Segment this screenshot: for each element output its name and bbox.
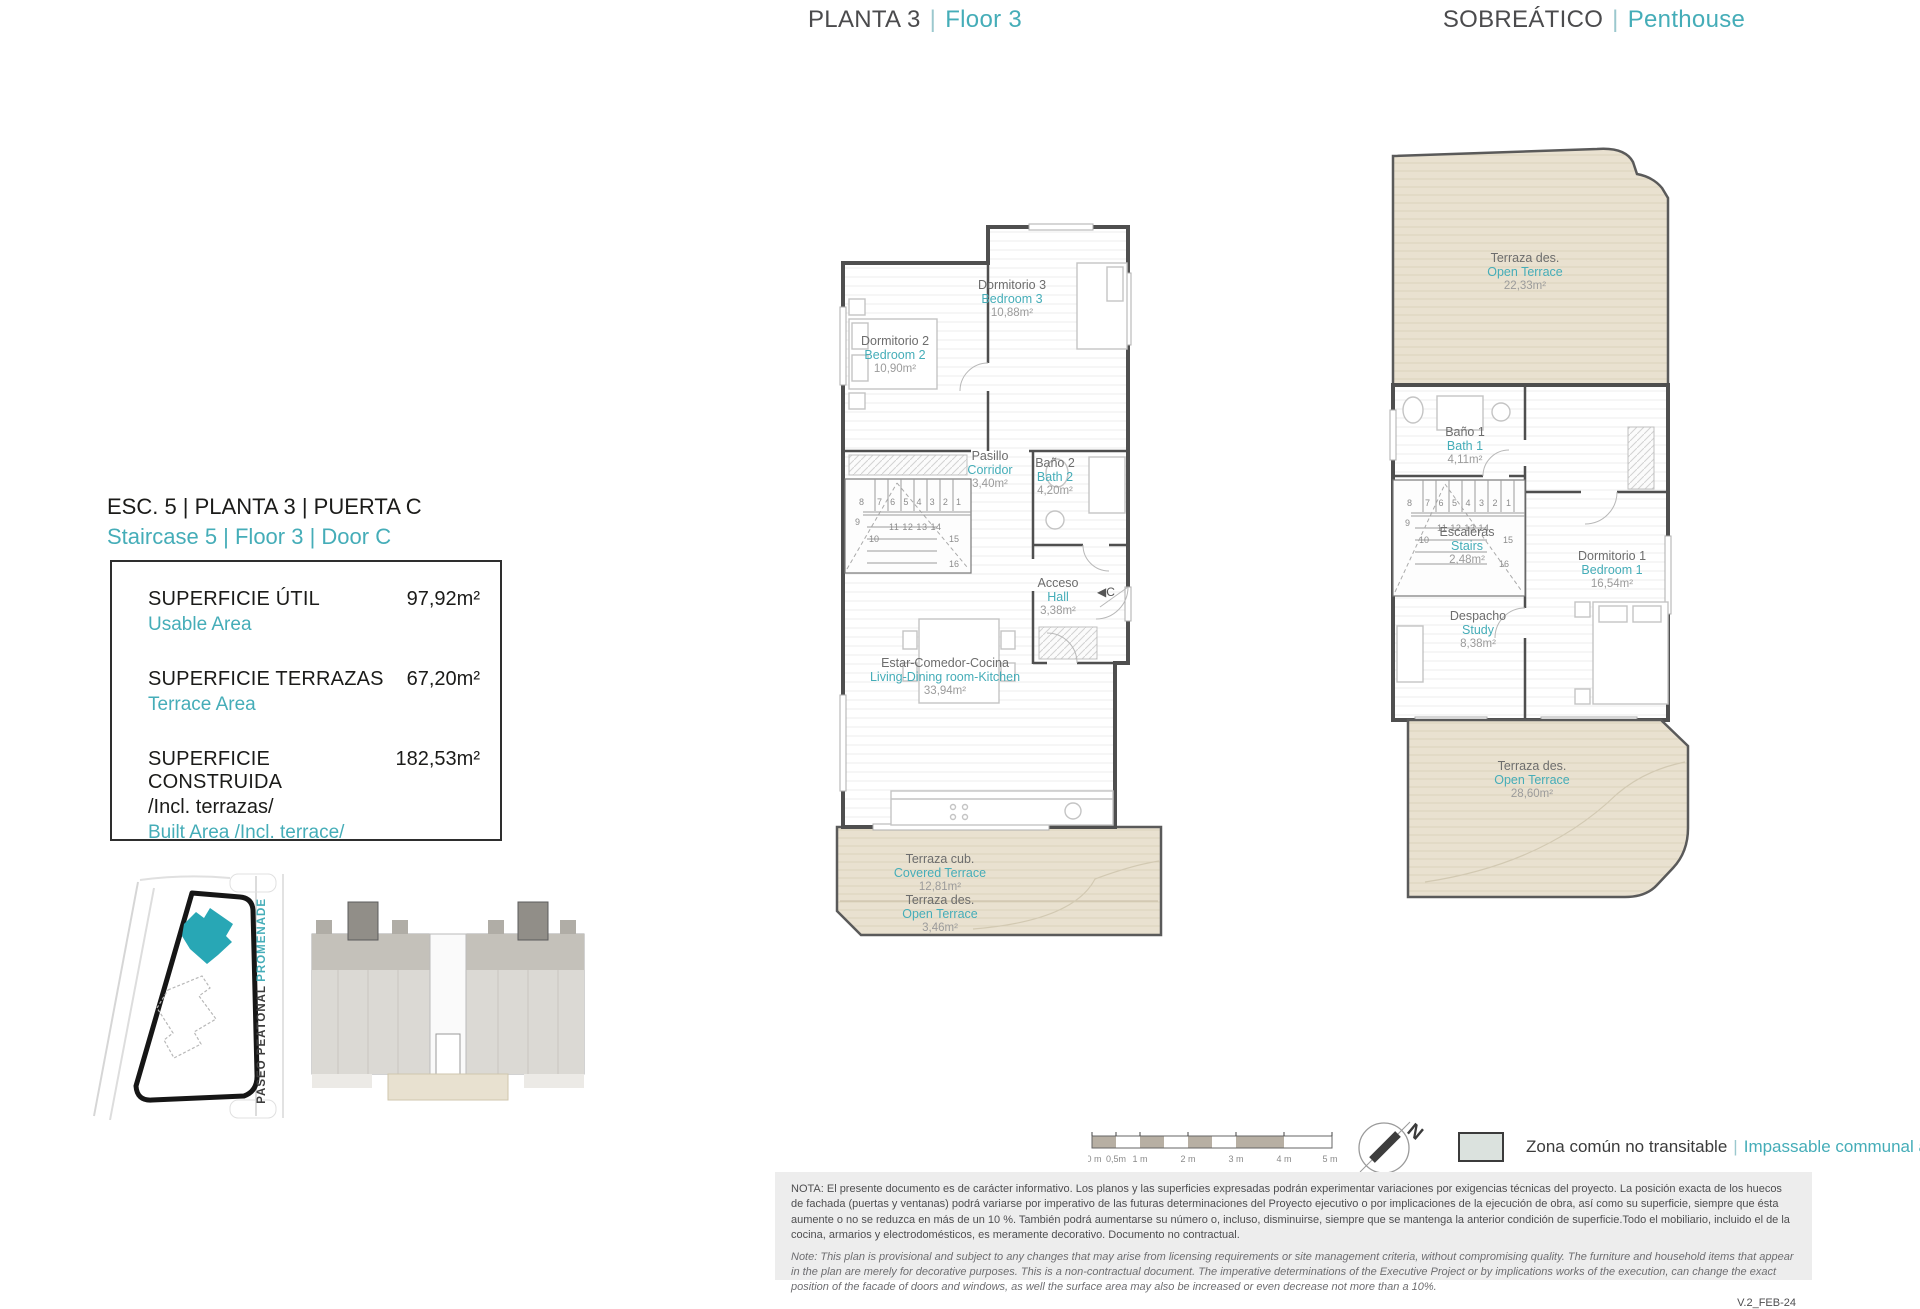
terrace-deck [837, 827, 1161, 935]
street-corner [230, 1100, 276, 1118]
room-name-es: Baño 1 [1445, 425, 1485, 439]
legend: Zona común no transitable|Impassable com… [1458, 1132, 1920, 1162]
bottom-terrace-deck [1408, 720, 1688, 897]
floor3-page-title: PLANTA 3|Floor 3 [750, 6, 1080, 34]
room-area: 3,46m² [902, 922, 978, 935]
scale-label: 3 m [1228, 1154, 1243, 1164]
room-area: 3,40m² [967, 478, 1012, 491]
room-name-en: Bedroom 3 [978, 292, 1046, 306]
site-plan-drawing [80, 872, 285, 1120]
floorplan-floor3: 8 7 6 5 4 3 2 1 9 10 11 12 13 14 15 16 [833, 215, 1165, 953]
room-name-es: Baño 2 [1035, 456, 1075, 470]
legend-label-en: Impassable communal area [1744, 1137, 1920, 1156]
unit-title-es: ESC. 5 | PLANTA 3 | PUERTA C [107, 492, 422, 522]
entry-door-marker: ◀C [1097, 585, 1115, 599]
floor3-title-es: PLANTA 3 [808, 6, 921, 33]
room-name-en: Open Terrace [902, 907, 978, 921]
penthouse-page-title: SOBREÁTICO|Penthouse [1404, 6, 1784, 34]
room-label-open-terrace: Terraza des. Open Terrace 3,46m² [902, 893, 978, 935]
unit-title: ESC. 5 | PLANTA 3 | PUERTA C Staircase 5… [107, 492, 422, 551]
corridor-closet [849, 455, 967, 475]
penthouse-title-en: Penthouse [1628, 6, 1745, 33]
roof-unit [392, 920, 408, 934]
street-line [140, 876, 230, 880]
floorplan-sheet: { "colors": { "accent": "#45ADB8", "site… [0, 0, 1920, 1280]
room-label-study: Despacho Study 8,38m² [1450, 609, 1506, 651]
disclaimer-band: NOTA: El presente documento es de caráct… [775, 1172, 1812, 1280]
scale-label: 5 m [1322, 1154, 1337, 1164]
room-name-en: Covered Terrace [894, 866, 986, 880]
floorplan-penthouse: 8 7 6 5 4 3 2 1 9 10 11 12 13 14 15 16 [1385, 140, 1697, 930]
room-name-es: Terraza des. [1494, 759, 1570, 773]
room-label-corridor: Pasillo Corridor 3,40m² [967, 449, 1012, 491]
roof-unit [316, 920, 332, 934]
room-label-bedroom3: Dormitorio 3 Bedroom 3 10,88m² [978, 278, 1046, 320]
floorplan-floor3-drawing: 8 7 6 5 4 3 2 1 9 10 11 12 13 14 15 16 [833, 215, 1165, 953]
stair-number: 10 [1419, 535, 1429, 545]
room-label-open-terrace-top: Terraza des. Open Terrace 22,33m² [1487, 251, 1563, 293]
room-area: 12,81m² [894, 881, 986, 894]
scale-bar-drawing: 0 m 0,5m 1 m 2 m 3 m 4 m 5 m [1088, 1130, 1340, 1174]
side-apron [312, 1074, 372, 1088]
stair-number: 9 [1405, 518, 1410, 528]
room-name-es: Dormitorio 2 [861, 334, 929, 348]
scale-segments [1092, 1136, 1332, 1148]
room-name-en: Bath 2 [1035, 470, 1075, 484]
built-area-sublabel: Built Area /Incl. terrace/ [148, 822, 480, 844]
room-area: 8,38m² [1450, 638, 1506, 651]
room-area: 22,33m² [1487, 280, 1563, 293]
floor3-title-en: Floor 3 [945, 6, 1022, 33]
room-name-es: Terraza des. [1487, 251, 1563, 265]
room-name-en: Open Terrace [1487, 265, 1563, 279]
compass-needle [1372, 1134, 1398, 1160]
room-area: 3,38m² [1038, 605, 1079, 618]
scale-label: 1 m [1132, 1154, 1147, 1164]
scale-label: 0 m [1088, 1154, 1102, 1164]
room-area: 10,90m² [861, 363, 929, 376]
room-name-en: Bedroom 1 [1578, 563, 1646, 577]
room-label-living: Estar-Comedor-Cocina Living-Dining room-… [870, 656, 1020, 698]
scale-label: 2 m [1180, 1154, 1195, 1164]
built-area-label: SUPERFICIE CONSTRUIDA [148, 748, 398, 794]
scale-labels: 0 m 0,5m 1 m 2 m 3 m 4 m 5 m [1088, 1154, 1338, 1164]
room-area: 16,54m² [1578, 578, 1646, 591]
room-label-stairs: Escaleras Stairs 2,48m² [1440, 525, 1495, 567]
unit-title-en: Staircase 5 | Floor 3 | Door C [107, 522, 422, 552]
stair-core [518, 902, 548, 940]
room-name-en: Corridor [967, 463, 1012, 477]
room-name-es: Terraza cub. [894, 852, 986, 866]
room-area: 4,11m² [1445, 454, 1485, 467]
stair-number: 16 [949, 559, 959, 569]
legend-divider: | [1733, 1137, 1737, 1156]
terrace-area-row: SUPERFICIE TERRAZAS 67,20m² Terrace Area [148, 668, 480, 716]
roof-unit [488, 920, 504, 934]
room-name-es: Terraza des. [902, 893, 978, 907]
stair-number: 8 [1407, 498, 1412, 508]
building-section-drawing [292, 874, 604, 1120]
room-name-en: Living-Dining room-Kitchen [870, 670, 1020, 684]
room-name-en: Study [1450, 623, 1506, 637]
title-divider: | [930, 6, 937, 33]
entrance [436, 1034, 460, 1074]
stair-number: 9 [855, 517, 860, 527]
room-name-es: Despacho [1450, 609, 1506, 623]
room-name-en: Hall [1038, 590, 1079, 604]
surface-areas-box: SUPERFICIE ÚTIL 97,92m² Usable Area SUPE… [110, 560, 502, 841]
room-label-bath1: Baño 1 Bath 1 4,11m² [1445, 425, 1485, 467]
stair-number: 15 [949, 534, 959, 544]
room-label-open-terrace-bottom: Terraza des. Open Terrace 28,60m² [1494, 759, 1570, 801]
roof-unit [560, 920, 576, 934]
stair-number: 15 [1503, 535, 1513, 545]
title-divider: | [1612, 6, 1619, 33]
building-section-thumbnail [292, 874, 604, 1120]
stair-core [348, 902, 378, 940]
usable-area-sublabel: Usable Area [148, 614, 480, 636]
room-label-hall: Acceso Hall 3,38m² [1038, 576, 1079, 618]
usable-area-row: SUPERFICIE ÚTIL 97,92m² Usable Area [148, 588, 480, 636]
built-area-value: 182,53m² [396, 748, 481, 771]
plan-version: V.2_FEB-24 [791, 1297, 1796, 1309]
street-line [94, 882, 138, 1116]
terrace-area-sublabel: Terrace Area [148, 694, 480, 716]
terrace-apron [388, 1074, 508, 1100]
disclaimer-en: Note: This plan is provisional and subje… [791, 1250, 1796, 1296]
scale-label: 0,5m [1106, 1154, 1126, 1164]
room-area: 10,88m² [978, 307, 1046, 320]
room-name-en: Stairs [1440, 539, 1495, 553]
legend-swatch [1458, 1132, 1504, 1162]
side-apron [524, 1074, 584, 1088]
room-label-bedroom2: Dormitorio 2 Bedroom 2 10,90m² [861, 334, 929, 376]
stair-number: 8 [859, 497, 864, 507]
room-label-covered-terrace: Terraza cub. Covered Terrace 12,81m² [894, 852, 986, 894]
room-name-es: Pasillo [967, 449, 1012, 463]
room-name-es: Dormitorio 1 [1578, 549, 1646, 563]
stair-number: 16 [1499, 559, 1509, 569]
site-plan-thumbnail [80, 872, 285, 1120]
room-area: 28,60m² [1494, 788, 1570, 801]
street-label: PASEO PEATONAL [256, 985, 268, 1104]
scale-ticks [1092, 1132, 1332, 1136]
disclaimer-es: NOTA: El presente documento es de caráct… [791, 1182, 1796, 1244]
room-area: 2,48m² [1440, 554, 1495, 567]
bedroom-closet [1628, 427, 1654, 489]
promenade-label: PROMENADE [256, 898, 268, 982]
penthouse-title-es: SOBREÁTICO [1443, 6, 1603, 33]
room-name-es: Dormitorio 3 [978, 278, 1046, 292]
usable-area-value: 97,92m² [407, 588, 480, 611]
north-label: N [1403, 1120, 1427, 1145]
room-label-bedroom1: Dormitorio 1 Bedroom 1 16,54m² [1578, 549, 1646, 591]
scale-bar: 0 m 0,5m 1 m 2 m 3 m 4 m 5 m [1088, 1130, 1340, 1174]
room-name-en: Open Terrace [1494, 773, 1570, 787]
room-area: 4,20m² [1035, 485, 1075, 498]
room-name-es: Acceso [1038, 576, 1079, 590]
hall-closet [1039, 627, 1097, 659]
scale-label: 4 m [1276, 1154, 1291, 1164]
stair-number: 10 [869, 534, 879, 544]
legend-text: Zona común no transitable|Impassable com… [1526, 1137, 1920, 1157]
room-name-es: Estar-Comedor-Cocina [870, 656, 1020, 670]
room-label-bath2: Baño 2 Bath 2 4,20m² [1035, 456, 1075, 498]
room-name-es: Escaleras [1440, 525, 1495, 539]
legend-label-es: Zona común no transitable [1526, 1137, 1727, 1156]
terrace-area-value: 67,20m² [407, 668, 480, 691]
built-area-row: SUPERFICIE CONSTRUIDA 182,53m² /Incl. te… [148, 748, 480, 844]
room-area: 33,94m² [870, 685, 1020, 698]
street-corner [230, 874, 276, 892]
room-name-en: Bath 1 [1445, 439, 1485, 453]
room-name-en: Bedroom 2 [861, 348, 929, 362]
built-area-label2: /Incl. terrazas/ [148, 796, 480, 819]
stair-number: 11 12 13 14 [889, 522, 941, 532]
